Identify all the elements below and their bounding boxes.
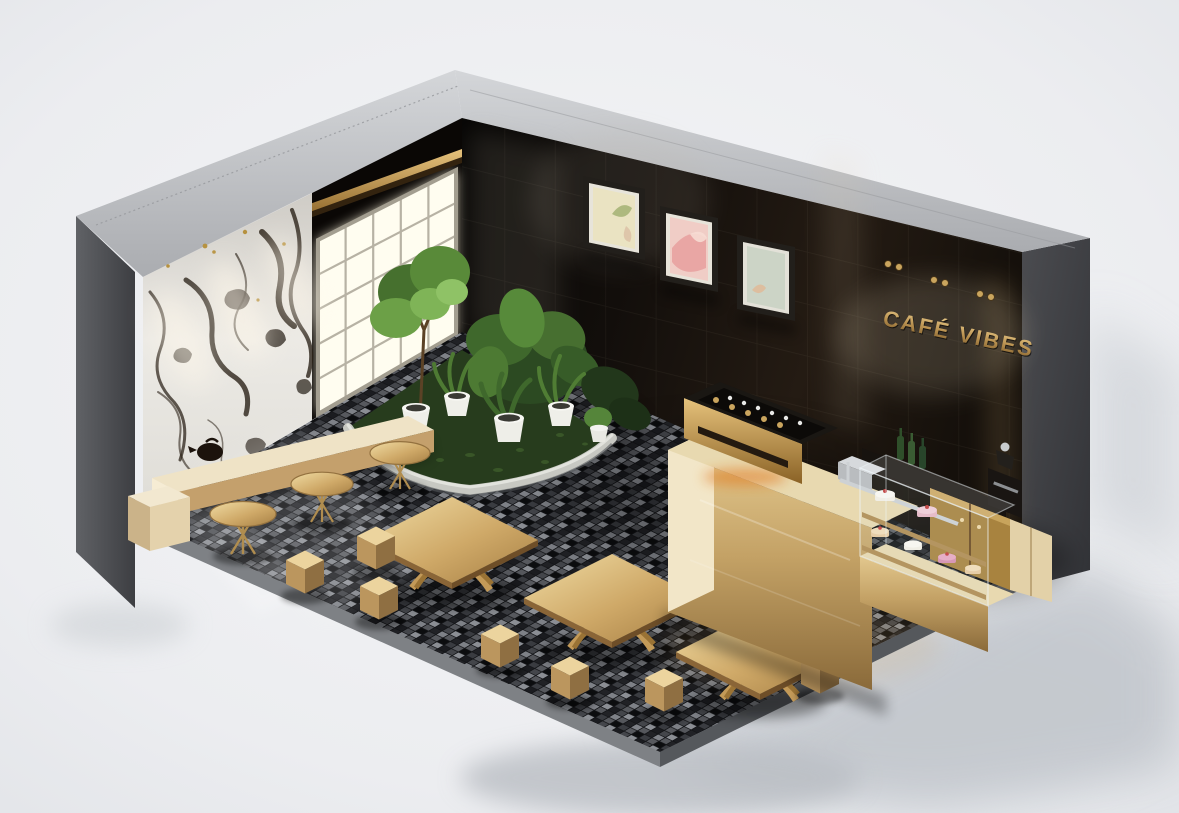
left-outer-face — [76, 216, 135, 608]
cafe-isometric-render: CAFÉ VIBES CAFÉ VIBES — [0, 0, 1179, 813]
scene-canvas: CAFÉ VIBES CAFÉ VIBES — [0, 0, 1179, 813]
bench-end-cube — [128, 486, 190, 551]
